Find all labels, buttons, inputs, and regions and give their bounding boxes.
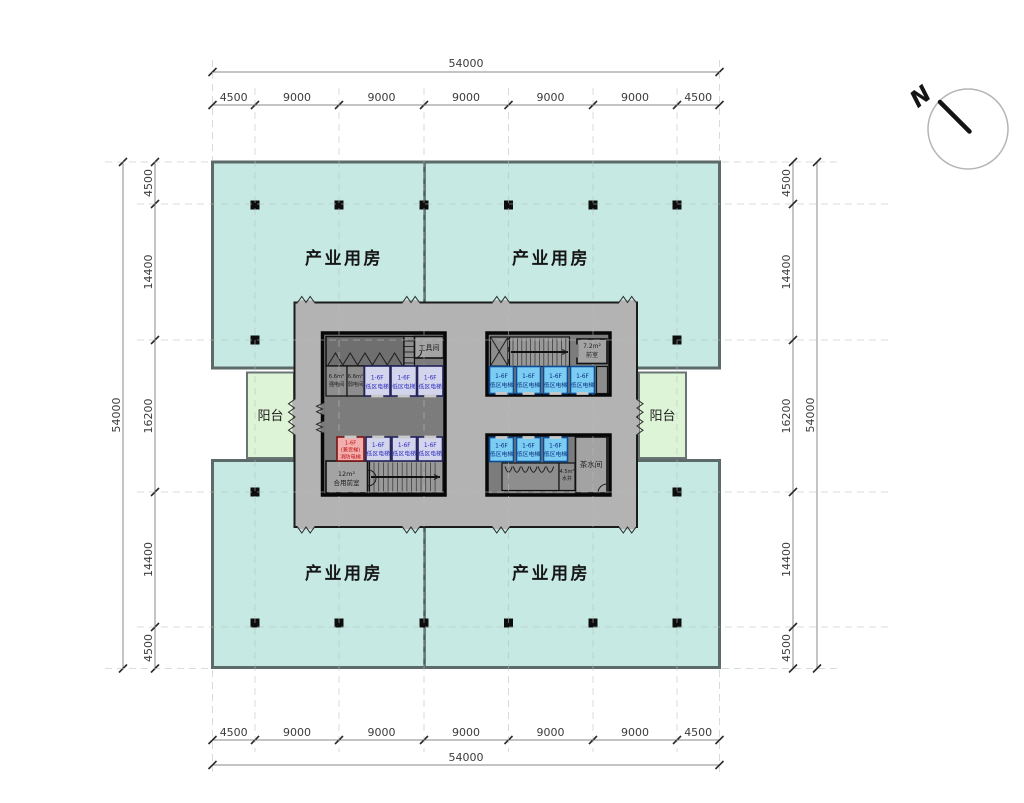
elevator-door-notch (550, 392, 562, 395)
elevator-label-floors: 1-6F (549, 374, 562, 380)
elevator-label-name: 低区电梯 (366, 383, 389, 391)
elevator-label-floors: 1-6F (522, 444, 535, 450)
room-label-industrial-lr: 产业用房 (512, 563, 590, 584)
compass-needle (940, 102, 970, 132)
dimension-label: 9000 (283, 726, 311, 739)
dimension-label: 16200 (780, 399, 793, 434)
building-plan (213, 162, 720, 668)
elevator-label-floors: 1-6F (397, 376, 410, 382)
elevator-door-notch (372, 436, 384, 439)
dimension-label: 4500 (220, 726, 248, 739)
room-label-elec-weak-area: 6.6m² (348, 374, 363, 380)
dimension-label: 54000 (804, 398, 817, 433)
dimension-label: 9000 (537, 726, 565, 739)
north-arrow: N (905, 81, 1008, 169)
elevator-label-name: 低区电梯 (419, 383, 442, 391)
dimension-label: 14400 (142, 542, 155, 577)
floor-plan-canvas: 5400045009000900090009000900045004500900… (0, 0, 1024, 803)
dimension-label: 54000 (449, 57, 484, 70)
elevator-label-name: 低区电梯 (419, 450, 442, 458)
dimension-label: 9000 (368, 91, 396, 104)
room-label-anteroom-area: 7.2m² (583, 343, 601, 350)
elevator-label-floors: 1-6F (398, 443, 411, 449)
elevator-label-name: 低区电梯 (367, 450, 390, 458)
dimension-label: 4500 (142, 634, 155, 662)
elevator-label-name: 低区电梯 (392, 383, 415, 391)
fire-elevator-label: 消防电梯 (340, 453, 361, 461)
elevator-door-notch (496, 392, 508, 395)
elevator-label-name: 低区电梯 (544, 450, 567, 458)
dimension-label: 9000 (621, 91, 649, 104)
elevator-label-name: 低区电梯 (490, 381, 513, 389)
low-zone-elevator-cell (517, 367, 541, 394)
north-label: N (905, 81, 936, 113)
elevator-door-notch (496, 436, 508, 439)
elevator-door-notch (345, 436, 357, 439)
elevator-label-name: 低区电梯 (393, 450, 416, 458)
elevator-label-floors: 1-6F (424, 443, 437, 449)
elec-room-weak (347, 366, 364, 396)
elevator-label-floors: 1-6F (576, 374, 589, 380)
elevator-label-floors: 1-6F (549, 444, 562, 450)
door-gap (575, 345, 578, 358)
dimension-label: 9000 (537, 91, 565, 104)
dimension-label: 4500 (684, 91, 712, 104)
low-zone-elevator-cell (490, 367, 514, 394)
dimension-label: 4500 (780, 634, 793, 662)
low-zone-elevator-cell (544, 367, 568, 394)
room-label-industrial-ll: 产业用房 (305, 563, 383, 584)
elevator-label-name: 低区电梯 (517, 450, 540, 458)
dimension-label: 4500 (684, 726, 712, 739)
dimension-label: 9000 (452, 726, 480, 739)
room-label-tea-room: 茶水间 (580, 459, 603, 469)
dimension-label: 14400 (780, 542, 793, 577)
elec-room-strong (326, 366, 347, 396)
elevator-label-name: 低区电梯 (517, 381, 540, 389)
room-label-tool-room: 工具间 (419, 344, 440, 352)
machine-room (326, 337, 404, 367)
elevator-label-floors: 1-6F (371, 376, 384, 382)
dimension-label: 4500 (142, 169, 155, 197)
elevator-label-name: 低区电梯 (571, 381, 594, 389)
room-label-anteroom-name: 前室 (586, 351, 598, 359)
elevator-door-notch (398, 436, 410, 439)
room-label-industrial-ul: 产业用房 (305, 248, 383, 269)
elevator-door-notch (523, 392, 535, 395)
dimension-label: 14400 (780, 255, 793, 290)
dimension-label: 4500 (780, 169, 793, 197)
dimension-label: 9000 (283, 91, 311, 104)
room-label-elec-strong-area: 6.6m² (329, 374, 344, 380)
floor-plan-drawing: 5400045009000900090009000900045004500900… (0, 0, 1024, 803)
elevator-door-notch (523, 436, 535, 439)
fire-elevator-label: 1-6F (345, 441, 356, 447)
elevator-label-name: 低区电梯 (490, 450, 513, 458)
dimension-label: 54000 (449, 751, 484, 764)
elevator-door-notch (424, 436, 436, 439)
dimension-label: 4500 (220, 91, 248, 104)
elevator-door-notch (424, 395, 436, 398)
room-label-industrial-ur: 产业用房 (512, 248, 590, 269)
elevator-label-floors: 1-6F (372, 443, 385, 449)
elevator-door-notch (550, 436, 562, 439)
room-label-elec-strong-name: 强电间 (329, 380, 345, 388)
dimension-label: 9000 (368, 726, 396, 739)
elevator-label-floors: 1-6F (495, 444, 508, 450)
room-label-elec-weak-name: 弱电间 (348, 380, 364, 388)
room-label-water-shaft-name: 水井 (562, 475, 572, 482)
dimension-label: 16200 (142, 399, 155, 434)
fire-elevator-label: (兼货梯) (341, 446, 361, 454)
elevator-label-floors: 1-6F (424, 376, 437, 382)
room-label-balcony-left: 阳台 (257, 409, 283, 424)
low-zone-elevator-cell (571, 367, 595, 394)
elevator-door-notch (371, 395, 383, 398)
elevator-label-floors: 1-6F (522, 374, 535, 380)
room-label-balcony-right: 阳台 (649, 409, 675, 424)
elevator-door-notch (577, 392, 589, 395)
elevator-door-notch (398, 395, 410, 398)
dimension-label: 9000 (452, 91, 480, 104)
dimension-label: 9000 (621, 726, 649, 739)
room-label-shared-anteroom-name: 合用前室 (334, 478, 361, 487)
room-label-shared-anteroom-area: 12m² (338, 470, 356, 478)
side-shaft (597, 367, 608, 394)
elevator-label-name: 低区电梯 (544, 381, 567, 389)
dimension-label: 14400 (142, 255, 155, 290)
dimension-label: 54000 (110, 398, 123, 433)
room-label-water-shaft-area: 4.5m² (560, 469, 575, 475)
elevator-label-floors: 1-6F (495, 374, 508, 380)
